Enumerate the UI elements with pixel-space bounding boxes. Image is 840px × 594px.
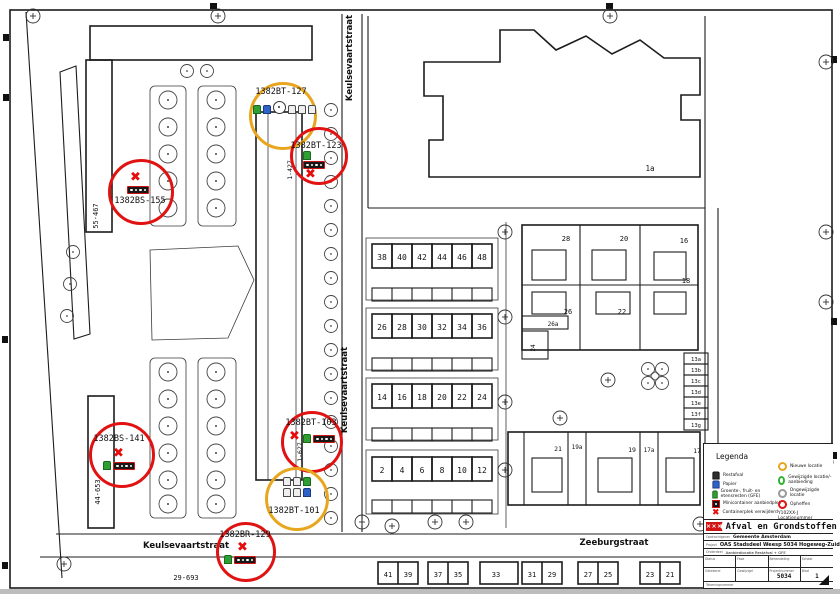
project-number-cell: Projectnummer5034 (769, 568, 801, 582)
field-label: Opdrachtgever (706, 535, 730, 539)
legend-item-restafval: Restafval (712, 471, 743, 480)
house-number: 19a (572, 444, 583, 451)
subject-value: Aanbiedlocatie Restafval + GFE (726, 550, 786, 555)
house-number: 13f (691, 412, 701, 418)
restafval-bin-icon (283, 477, 291, 486)
house-number: 26a (548, 321, 559, 328)
house-number: 22 (618, 308, 626, 316)
house-number: 8 (440, 466, 445, 475)
house-number: 44 (437, 253, 447, 262)
legend-label: Groente-, fruit- en etensresten (GFE) (721, 489, 770, 499)
house-number: 27 (584, 571, 592, 579)
site-plan-page: Keulsevaartstraat Keulsevaartstraat Keul… (0, 0, 840, 594)
house-number: 46 (457, 253, 467, 262)
house-number: 16 (397, 393, 407, 402)
legend-item-gewijzigd: Gewijzigde locatie/-aanbieding (778, 475, 832, 485)
legend-item-ongewijzigd: Ongewijzigde locatie (778, 488, 833, 498)
minicontainer-icon (712, 500, 720, 508)
removed-x-icon: ✖ (130, 172, 141, 183)
house-number: 21 (554, 445, 562, 453)
field-cell: Status (704, 556, 736, 568)
container-row-icon (113, 462, 135, 470)
removed-x-icon: ✖ (712, 509, 720, 517)
location-number: 1382BT-123 (281, 141, 351, 151)
department-title: Afval en Grondstoffen (726, 522, 837, 532)
changed-location-circle (778, 476, 785, 485)
house-number: 13c (691, 379, 701, 385)
restafval-bin-icon (293, 477, 301, 486)
house-number: 19 (628, 446, 636, 454)
house-number: 13b (691, 368, 701, 374)
house-number: 17a (644, 447, 655, 454)
house-number: 20 (620, 235, 628, 243)
legend-label: Nieuwe locatie (790, 464, 822, 469)
papier-bin-icon (263, 105, 271, 114)
house-number: 1a (645, 164, 654, 173)
house-number: 2 (380, 466, 385, 475)
legend-label: Ongewijzigde locatie (790, 488, 833, 498)
title-block-header: ××× Afval en Grondstoffen (704, 520, 833, 534)
underground-container-icon (273, 101, 286, 114)
removed-x-icon: ✖ (305, 169, 316, 180)
legend-item-papier: Papier (712, 480, 737, 489)
gfe-bin-icon (224, 555, 232, 564)
legend: Legenda Restafval Papier Groente-, fruit… (704, 444, 833, 519)
house-number: 32 (437, 323, 447, 332)
legend-label: Minicontainer aanbiedplek (723, 501, 781, 506)
house-number: 34 (457, 323, 467, 332)
gfe-bin-icon (253, 105, 261, 114)
removed-x-icon: ✖ (113, 448, 124, 459)
title-block-grid: Status Fase Behandeling Schaal Getekend … (704, 556, 833, 582)
street-label: Zeeburgstraat (580, 538, 649, 548)
field-label: Onderdeel (706, 550, 723, 554)
papier-bin-icon (303, 488, 311, 497)
legend-label: Restafval (723, 473, 743, 478)
gfe-bin-icon (303, 151, 311, 160)
street-label: Keulsevaartstraat (345, 15, 355, 101)
house-number: 37 (434, 571, 442, 579)
container-icons (303, 434, 335, 443)
house-number: 13d (691, 390, 701, 396)
field-cell: Getekend (704, 568, 736, 582)
house-number: 26 (564, 308, 572, 316)
container-icons (224, 555, 256, 564)
legend-titleblock-panel: Legenda Restafval Papier Groente-, fruit… (703, 443, 833, 589)
field-cell: Fase (736, 556, 768, 568)
field-label: Tekeningnummer (706, 583, 734, 587)
location-number: 1382BT-127 (246, 87, 316, 97)
house-number: 41 (384, 571, 392, 579)
remove-location-circle (778, 500, 787, 509)
container-icons (283, 477, 311, 486)
gfe-bin-icon (712, 490, 717, 498)
house-numbers: 38 40 42 44 46 48 26 28 30 32 34 36 14 1… (377, 235, 701, 579)
house-number: 28 (562, 235, 570, 243)
container-row-icon (313, 435, 335, 443)
restafval-bin-icon (283, 488, 291, 497)
house-number: 29 (548, 571, 556, 579)
gfe-bin-icon (303, 434, 311, 443)
house-number: 24 (477, 393, 487, 402)
drawing-number-row: Tekeningnummer (704, 582, 833, 589)
house-number: 6 (420, 466, 425, 475)
house-range: 29-693 (173, 574, 198, 582)
house-number: 39 (404, 571, 412, 579)
house-number: 13g (691, 423, 701, 429)
house-number: 36 (477, 323, 487, 332)
project-value: OAS Stadsdeel Weesp 5034 Hogeweg-Zuid (720, 542, 840, 548)
container-icons (283, 488, 311, 497)
container-icons (127, 186, 149, 194)
block-right-upper (522, 225, 698, 359)
container-icons (253, 101, 316, 114)
container-icons (103, 461, 135, 470)
block-right-lower (508, 432, 700, 505)
removed-x-icon: ✖ (237, 542, 248, 553)
legend-item-gfe: Groente-, fruit- en etensresten (GFE) (712, 489, 770, 499)
house-number: 20 (437, 393, 447, 402)
house-number: 4 (400, 466, 405, 475)
legend-item-minicontainer: Minicontainer aanbiedplek (712, 500, 781, 508)
unchanged-location-circle (778, 489, 787, 498)
house-range: 44-653 (94, 479, 102, 504)
gfe-bin-icon (103, 461, 111, 470)
gfe-bin-icon (303, 477, 311, 486)
building-school (424, 30, 700, 177)
project-row: Project OAS Stadsdeel Weesp 5034 Hogeweg… (704, 541, 833, 549)
house-number: 21 (666, 571, 674, 579)
house-number: 28 (397, 323, 407, 332)
legend-item-verwijderd: ✖ Containerplek verwijderd (712, 509, 778, 517)
house-number: 25 (604, 571, 612, 579)
legend-title: Legenda (716, 452, 748, 461)
house-number: 23 (646, 571, 654, 579)
new-location-circle (778, 462, 787, 471)
house-number: 35 (454, 571, 462, 579)
restafval-bin-icon (288, 105, 296, 114)
title-block: ××× Afval en Grondstoffen Opdrachtgever … (704, 519, 833, 594)
legend-label: Containerplek verwijderd (723, 510, 778, 515)
papier-bin-icon (712, 480, 719, 488)
house-number: 17 (693, 447, 701, 455)
scan-edge (0, 589, 840, 594)
subject-row: Onderdeel Aanbiedlocatie Restafval + GFE (704, 549, 833, 556)
restafval-bin-icon (308, 105, 316, 114)
location-number: 1382BT-103 (276, 418, 346, 428)
house-number: 22 (457, 393, 467, 402)
house-number: 38 (377, 253, 387, 262)
house-number: 14 (377, 393, 387, 402)
house-number: 12 (477, 466, 487, 475)
location-number: 1382BT-101 (259, 506, 329, 516)
house-number: 10 (457, 466, 467, 475)
location-number: 1382BS-155 (105, 196, 175, 206)
house-number: 31 (528, 571, 536, 579)
field-cell: Schaal (801, 556, 833, 568)
client-value: Gemeente Amsterdam (733, 535, 791, 540)
location-number: 1382BS-141 (84, 434, 154, 444)
client-row: Opdrachtgever Gemeente Amsterdam (704, 534, 833, 541)
legend-label: Opheffen (790, 502, 810, 507)
corner-fold-mark (819, 575, 829, 585)
restafval-bin-icon (298, 105, 306, 114)
legend-item-opheffen: Opheffen (778, 500, 810, 509)
house-number: 33 (492, 571, 500, 579)
house-number: 18 (682, 277, 690, 285)
legend-item-nieuw: Nieuwe locatie (778, 462, 822, 471)
house-number: 26 (377, 323, 387, 332)
house-number: 42 (417, 253, 427, 262)
restafval-bin-icon (712, 471, 719, 479)
legend-label: Gewijzigde locatie/-aanbieding (788, 475, 832, 485)
amsterdam-logo-icon: ××× (706, 522, 723, 531)
restafval-bin-icon (293, 488, 301, 497)
house-number: 16 (680, 237, 688, 245)
removed-x-icon: ✖ (289, 431, 300, 442)
field-label: Project (706, 543, 717, 547)
container-row-icon (127, 186, 149, 194)
legend-label: Papier (723, 482, 737, 487)
house-number: 24 (530, 344, 537, 352)
house-number: 13e (691, 401, 701, 407)
location-number: 1382BR-129 (210, 530, 280, 540)
container-row-icon (234, 556, 256, 564)
house-number: 30 (417, 323, 427, 332)
field-cell: Gewijzigd (736, 568, 768, 582)
house-number: 13a (691, 357, 701, 363)
house-number: 40 (397, 253, 407, 262)
street-labels: Keulsevaartstraat Keulsevaartstraat Keul… (143, 15, 649, 551)
house-number: 48 (477, 253, 487, 262)
house-range: 55-467 (92, 203, 100, 228)
field-cell: Behandeling (769, 556, 801, 568)
house-number: 18 (417, 393, 427, 402)
